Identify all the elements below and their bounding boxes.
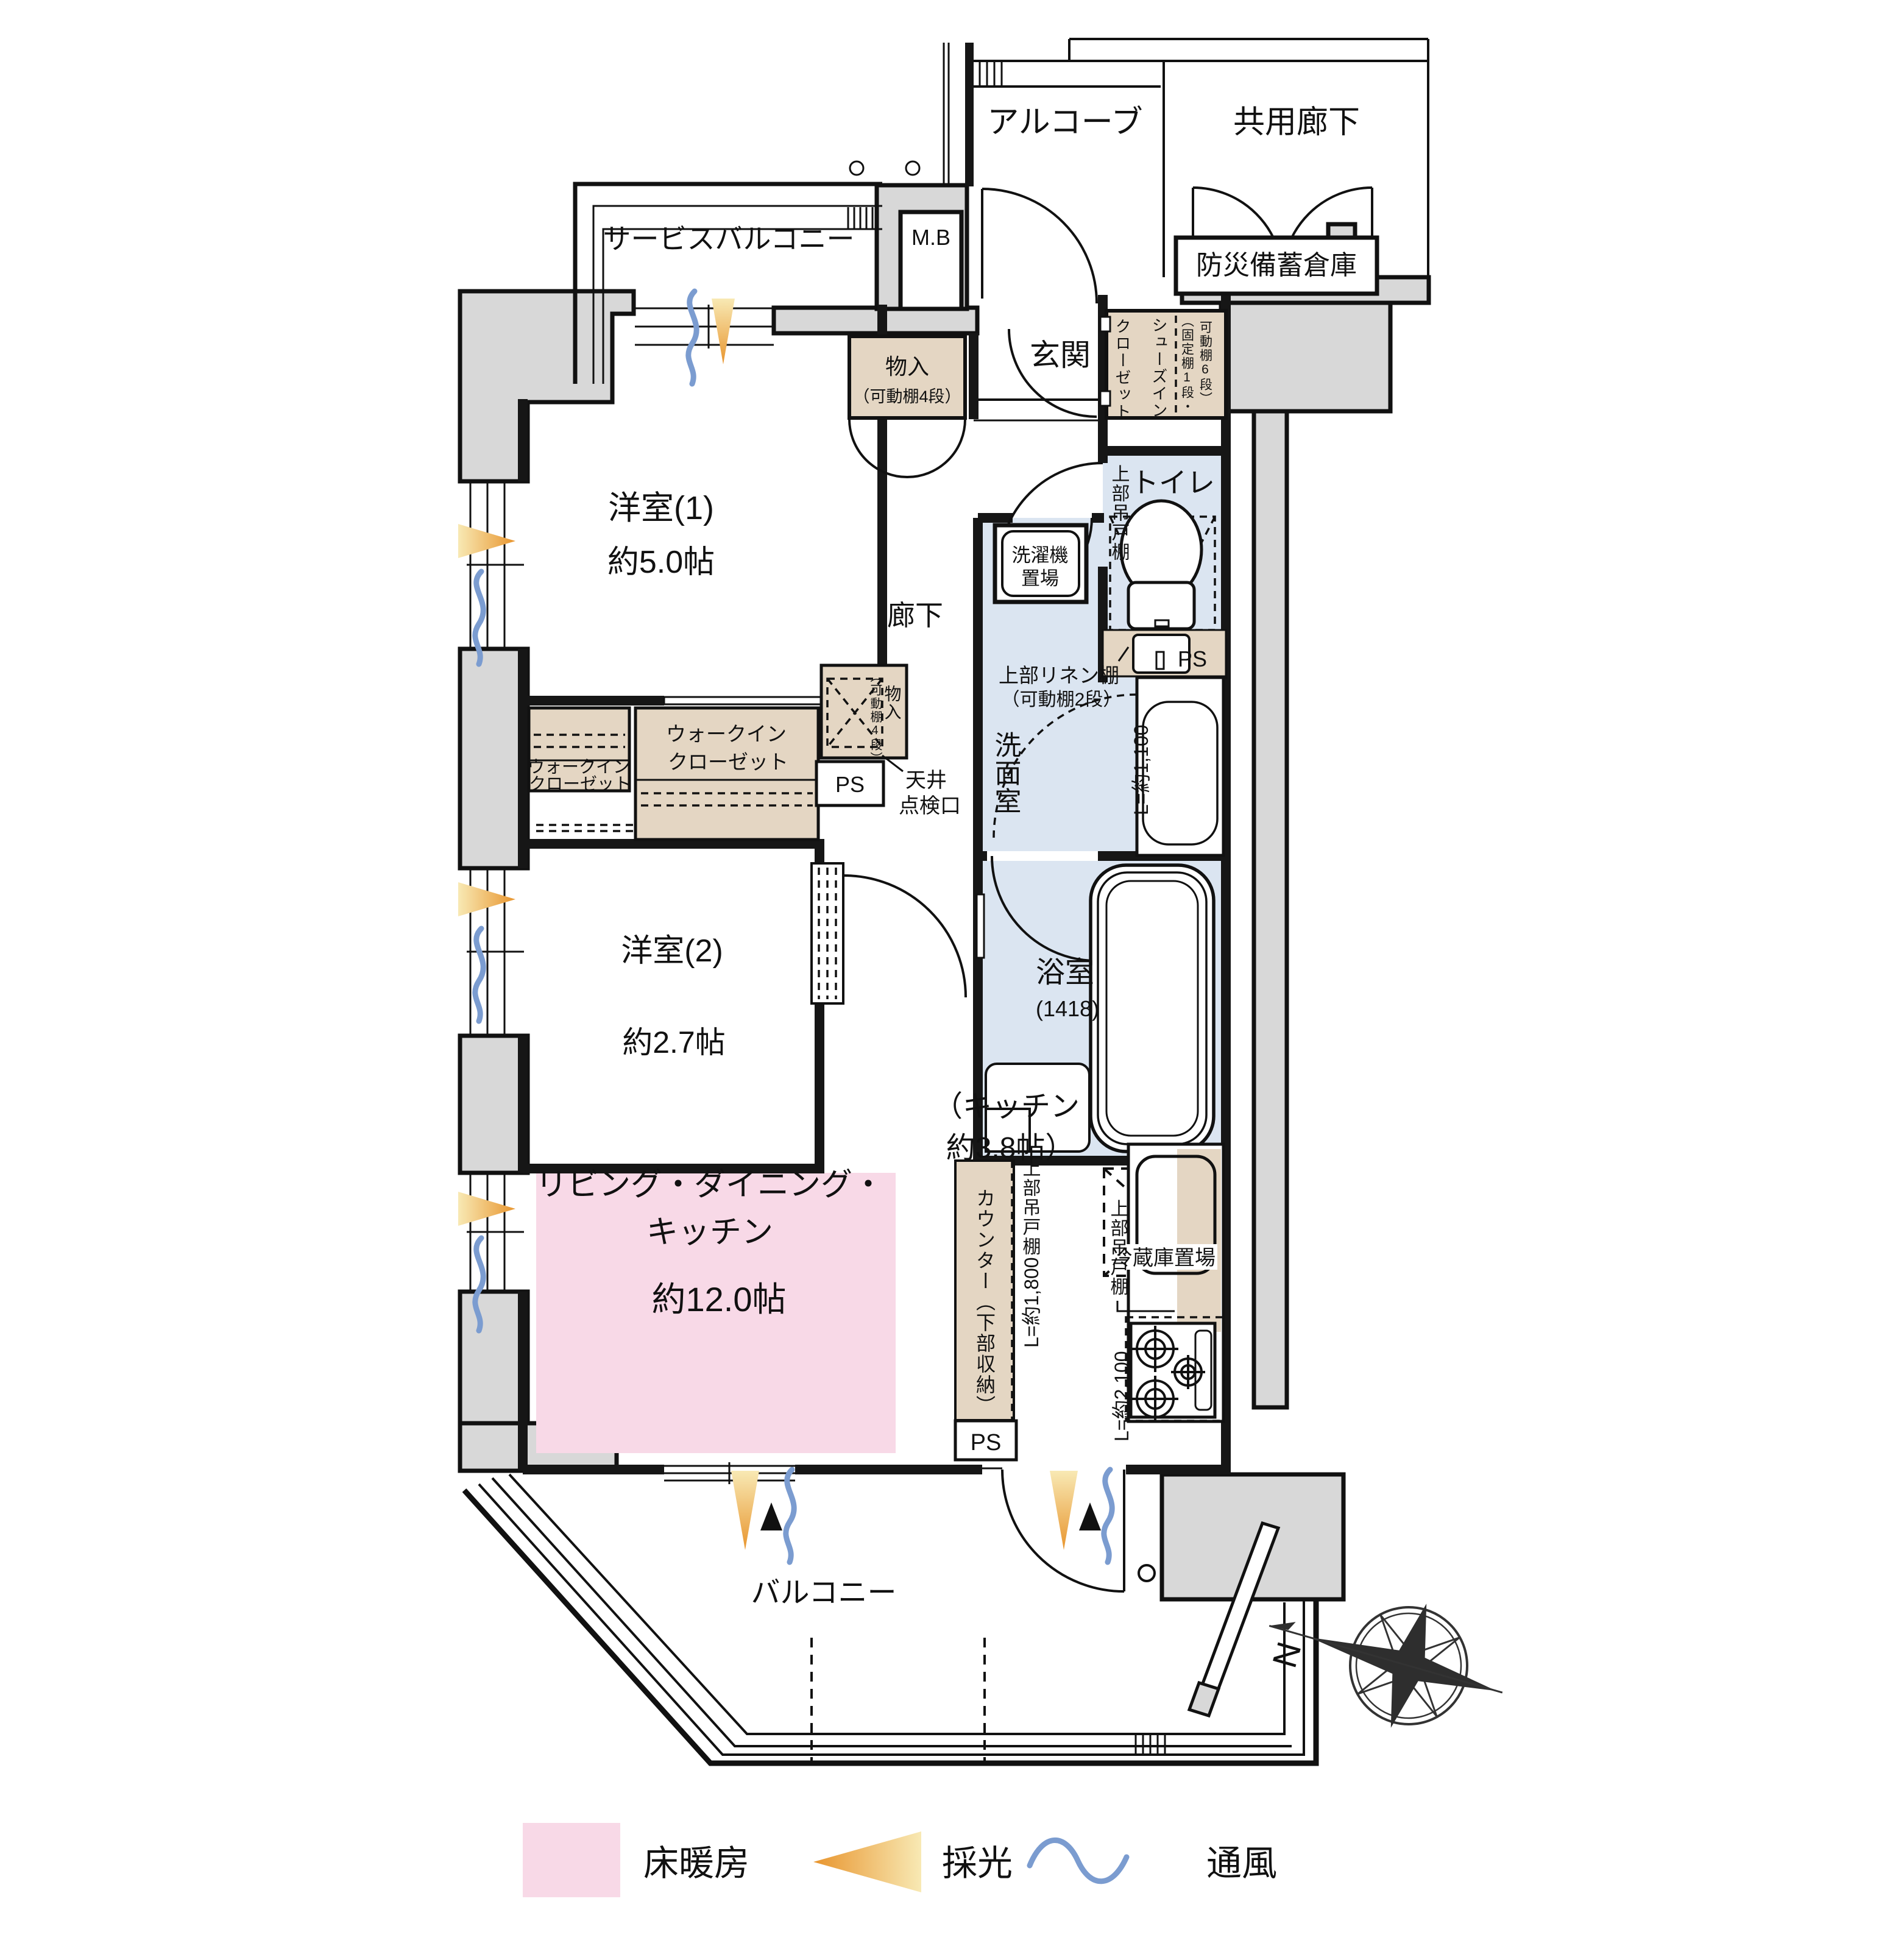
label-washer-2: 置場 <box>1021 568 1059 589</box>
label-shoes-shelf-1: （固定棚1段・ <box>1180 314 1195 414</box>
vent-w2 <box>475 929 483 1021</box>
legend-daylight-label: 採光 <box>942 1844 1013 1883</box>
label-corridor: 廊下 <box>887 600 943 631</box>
label-upper-cabinet-kitchen-right: 上部吊戸棚 <box>1108 1199 1129 1297</box>
label-hall-storage: 物入 <box>885 354 929 379</box>
arrow-s1 <box>760 1502 782 1530</box>
vent-s1 <box>786 1470 794 1562</box>
west-window-3 <box>467 1173 524 1292</box>
drop-wall-hatch <box>812 863 843 1003</box>
storage-bifold-doors <box>849 419 965 477</box>
label-washer-1: 洗濯機 <box>1012 545 1069 566</box>
west-room2-door-arc <box>844 876 966 997</box>
label-wic-left-2: クローゼット <box>529 774 631 793</box>
label-bath-size: (1418) <box>1036 996 1099 1021</box>
label-common-corridor: 共用廊下 <box>1233 105 1360 140</box>
label-ceiling-storage-shelf: （可動棚4段） <box>868 670 882 765</box>
daylight-sb <box>712 299 735 364</box>
label-hall-storage-shelf: （可動棚4段） <box>853 387 961 406</box>
label-ldk-2: キッチン <box>646 1215 773 1250</box>
label-kitchen-2: 約3.8帖） <box>946 1132 1075 1164</box>
front-door <box>982 189 1097 303</box>
label-l-2100: L=約2,100 <box>1111 1351 1133 1442</box>
label-ceiling-storage: 物入 <box>883 685 902 721</box>
arrow-s2 <box>1079 1502 1101 1530</box>
legend: 床暖房 採光 通風 <box>523 1823 1277 1897</box>
label-mb: M.B <box>911 225 950 250</box>
legend-ventilation-swatch <box>1030 1840 1127 1881</box>
label-service-balcony: サービスバルコニー <box>603 223 854 255</box>
label-l-1100: L=約1,100 <box>1130 724 1152 815</box>
label-ldk-1: リビング・ダイニング・ <box>536 1167 884 1203</box>
label-west-room-1: 洋室(1) <box>608 490 714 526</box>
label-wic-right-1: ウォークイン <box>666 723 787 745</box>
label-ps-toilet: PS <box>1178 646 1207 671</box>
label-shoes-in: シューズイン <box>1150 317 1168 419</box>
compass-north-label: N <box>1265 1638 1309 1672</box>
label-toilet: トイレ <box>1131 467 1215 498</box>
floor-plan-page: アルコーブ 共用廊下 サービスバルコニー M.B 防災備蓄倉庫 玄関 クローゼッ… <box>0 0 1904 1957</box>
label-alcove: アルコーブ <box>987 105 1142 140</box>
hatch-top <box>972 61 1002 87</box>
label-upper-cabinet-kitchen-left: 上部吊戸棚 <box>1020 1159 1041 1256</box>
balcony-vent-hatch <box>1136 1734 1165 1755</box>
legend-floor-heating-label: 床暖房 <box>643 1844 749 1883</box>
label-linen-2: （可動棚2段） <box>1002 690 1122 710</box>
label-genkan: 玄関 <box>1030 338 1091 372</box>
balcony-drain <box>1139 1565 1155 1581</box>
vent-s2 <box>1104 1470 1112 1562</box>
label-bath: 浴室 <box>1036 957 1094 989</box>
west-window-1 <box>467 481 524 649</box>
label-west-room-2-size: 約2.7帖 <box>622 1025 726 1060</box>
daylight-s2 <box>1050 1471 1078 1550</box>
label-shoes-shelf-2: 可動棚6段） <box>1198 320 1213 406</box>
label-washroom: 洗面室 <box>991 731 1021 815</box>
label-west-room-1-size: 約5.0帖 <box>607 545 715 580</box>
label-ldk-size: 約12.0帖 <box>652 1280 787 1318</box>
label-ceiling-hatch-1: 天井 <box>905 769 947 792</box>
label-toilet-upper-cabinet: 上部吊戸棚 <box>1109 464 1130 562</box>
label-west-room-2: 洋室(2) <box>621 933 723 969</box>
legend-ventilation-label: 通風 <box>1206 1844 1277 1883</box>
label-fridge: 冷蔵庫置場 <box>1112 1247 1216 1270</box>
label-ceiling-hatch-2: 点検口 <box>899 794 961 818</box>
daylight-s1 <box>731 1471 759 1550</box>
label-entry-closet: クローゼット <box>1113 318 1131 420</box>
legend-floor-heating-swatch <box>523 1823 620 1897</box>
label-ps-kitchen: PS <box>971 1430 1002 1456</box>
floor-plan: アルコーブ 共用廊下 サービスバルコニー M.B 防災備蓄倉庫 玄関 クローゼッ… <box>0 0 1904 1957</box>
label-balcony: バルコニー <box>751 1577 896 1609</box>
vent-sb <box>688 291 696 384</box>
label-disaster-storage: 防災備蓄倉庫 <box>1196 250 1357 280</box>
legend-daylight-swatch <box>813 1831 921 1892</box>
label-l-1800: L=約1,800 <box>1021 1257 1042 1348</box>
label-counter: カウンター（下部収納） <box>974 1188 996 1416</box>
label-wic-right-2: クローゼット <box>668 751 788 773</box>
label-linen-1: 上部リネン棚 <box>999 664 1119 687</box>
label-kitchen-1: （キッチン <box>933 1091 1080 1123</box>
label-wic-left-1: ウォークイン <box>528 757 630 776</box>
label-ps-hall: PS <box>835 772 865 797</box>
